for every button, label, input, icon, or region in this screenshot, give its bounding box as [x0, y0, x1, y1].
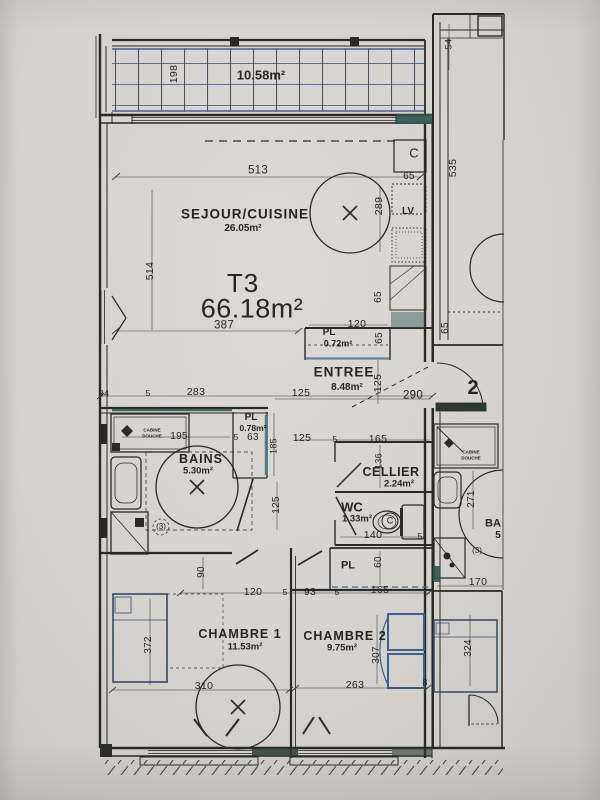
dim-bains-top: 283 — [187, 387, 205, 398]
shower-cabin-label-right: CABINE DOUCHE — [458, 449, 484, 460]
dim-bains-width: 195 — [170, 432, 188, 442]
floorplan-page: 198 10.58m² 54 513 SEJOUR/CUISINE 26.05m… — [0, 0, 600, 800]
dim-balcony-depth: 198 — [169, 65, 180, 83]
floorplan-drawing — [0, 0, 600, 800]
dim-small-5e: 5 — [282, 588, 287, 597]
room-pl-bains-label: PL — [245, 413, 258, 423]
dim-bains-door: 125 — [272, 496, 282, 514]
dim-small-5b: 5 — [233, 433, 238, 442]
dim-sejour-bottom: 387 — [214, 320, 234, 332]
furniture — [113, 594, 497, 692]
plan-type-title: T3 — [227, 270, 259, 296]
balcony-area: 10.58m² — [237, 69, 285, 82]
kitchen-fixtures — [390, 140, 426, 310]
dim-neighbor-bed: 324 — [464, 639, 474, 657]
cooktop-symbol: C — [409, 147, 418, 160]
dim-loggia-bottom: 65 — [441, 322, 451, 334]
room-bains-area: 5.30m² — [183, 466, 213, 476]
room-pl-entree-area: 0.72m² — [324, 340, 353, 349]
room-wc-area: 1.33m² — [342, 514, 372, 524]
dishwasher-label: LV — [402, 207, 414, 217]
room-pl-couloir-label: PL — [341, 561, 355, 572]
dim-chambre2-bottom: 263 — [346, 680, 364, 691]
dim-small-5a: 5 — [145, 389, 150, 398]
room-cellier-label: CELLIER — [363, 466, 420, 479]
dim-pl-bains-height: 185 — [270, 438, 279, 454]
dimension-lines — [97, 24, 502, 693]
dim-cellier-width: 165 — [369, 434, 387, 445]
wc-symbol: C — [387, 517, 394, 526]
dim-neighbor-wc: 170 — [469, 577, 487, 588]
room-entree-area: 8.48m² — [331, 383, 363, 393]
neighbor-room-partial-label: BA — [485, 519, 501, 530]
room-chambre1-label: CHAMBRE 1 — [198, 628, 281, 641]
dim-chambre2-left: 93 — [304, 587, 316, 598]
room-entree-label: ENTREE — [314, 365, 375, 379]
dim-loggia-top: 54 — [445, 39, 454, 50]
dim-chambre1-door: 90 — [197, 566, 207, 578]
dim-chambre1-bed: 372 — [144, 636, 154, 654]
apartment-number-badge: 2 — [467, 378, 478, 398]
dim-entree-height: 125 — [373, 374, 384, 392]
note-label-right: (3) — [472, 547, 482, 555]
room-chambre2-label: CHAMBRE 2 — [303, 630, 386, 643]
dim-pl-entree-width: 120 — [348, 319, 366, 330]
note-label-left: (3) — [156, 523, 166, 531]
dim-kitchen-side: 65 — [374, 291, 384, 303]
dim-chambre1-bottom: 310 — [195, 681, 213, 692]
room-chambre1-area: 11.53m² — [228, 642, 263, 652]
dim-small-5f: 5 — [334, 588, 339, 597]
dim-loggia-side: 535 — [448, 159, 459, 177]
room-sejour-area: 26.05m² — [224, 224, 261, 234]
dim-chambre1-top: 120 — [244, 587, 262, 598]
dim-sejour-left: 514 — [145, 262, 156, 280]
dim-entree-left: 125 — [292, 388, 310, 399]
room-bains-label: BAINS — [179, 453, 223, 466]
dim-right-wall: 8 — [422, 679, 427, 688]
dim-cellier-left: 125 — [293, 433, 311, 444]
dim-kitchen-top: 65 — [403, 172, 415, 182]
dim-pl-bains-width: 63 — [247, 433, 259, 443]
dim-chambre2-side: 307 — [372, 646, 382, 664]
room-wc-label: WC — [341, 501, 363, 514]
room-chambre2-area: 9.75m² — [327, 643, 357, 653]
dim-small-5d: 5 — [417, 532, 422, 541]
dim-pl-entree-side: 65 — [375, 332, 385, 344]
shower-cabin-label-left: CABINE DOUCHE — [139, 427, 165, 438]
dim-sejour-top: 513 — [248, 165, 268, 177]
room-pl-bains-area: 0.78m² — [240, 424, 267, 433]
dim-sejour-right: 289 — [374, 197, 385, 215]
dim-left-wall: 34 — [99, 390, 110, 399]
room-sejour-label: SEJOUR/CUISINE — [181, 207, 309, 221]
dim-chambre2-top: 165 — [371, 585, 389, 596]
dim-wc-width: 140 — [364, 530, 382, 541]
facade — [103, 751, 503, 776]
room-cellier-area: 2.24m² — [384, 479, 414, 489]
dim-entree-width: 290 — [403, 390, 423, 402]
dim-small-5c: 5 — [332, 435, 337, 444]
dim-pl-couloir-height: 60 — [374, 556, 384, 568]
dim-neighbor-bath: 271 — [467, 490, 477, 508]
room-pl-entree-label: PL — [323, 328, 336, 338]
neighbor-area-partial-label: 5 — [495, 531, 501, 541]
